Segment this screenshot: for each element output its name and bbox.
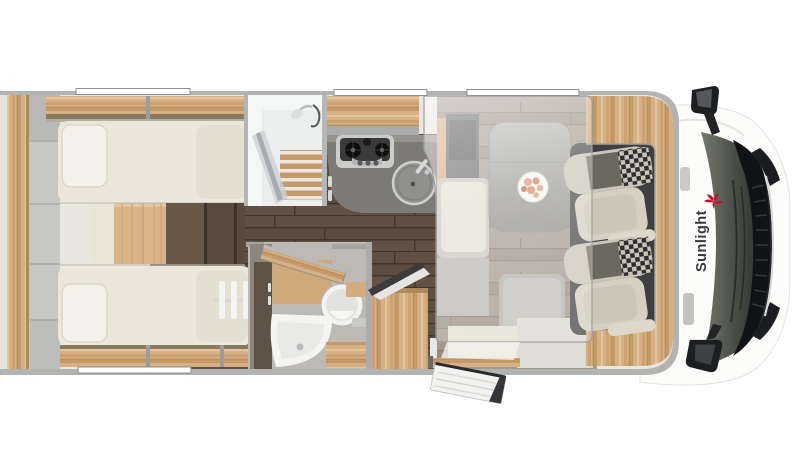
- svg-text:Sunlight: Sunlight: [694, 210, 710, 272]
